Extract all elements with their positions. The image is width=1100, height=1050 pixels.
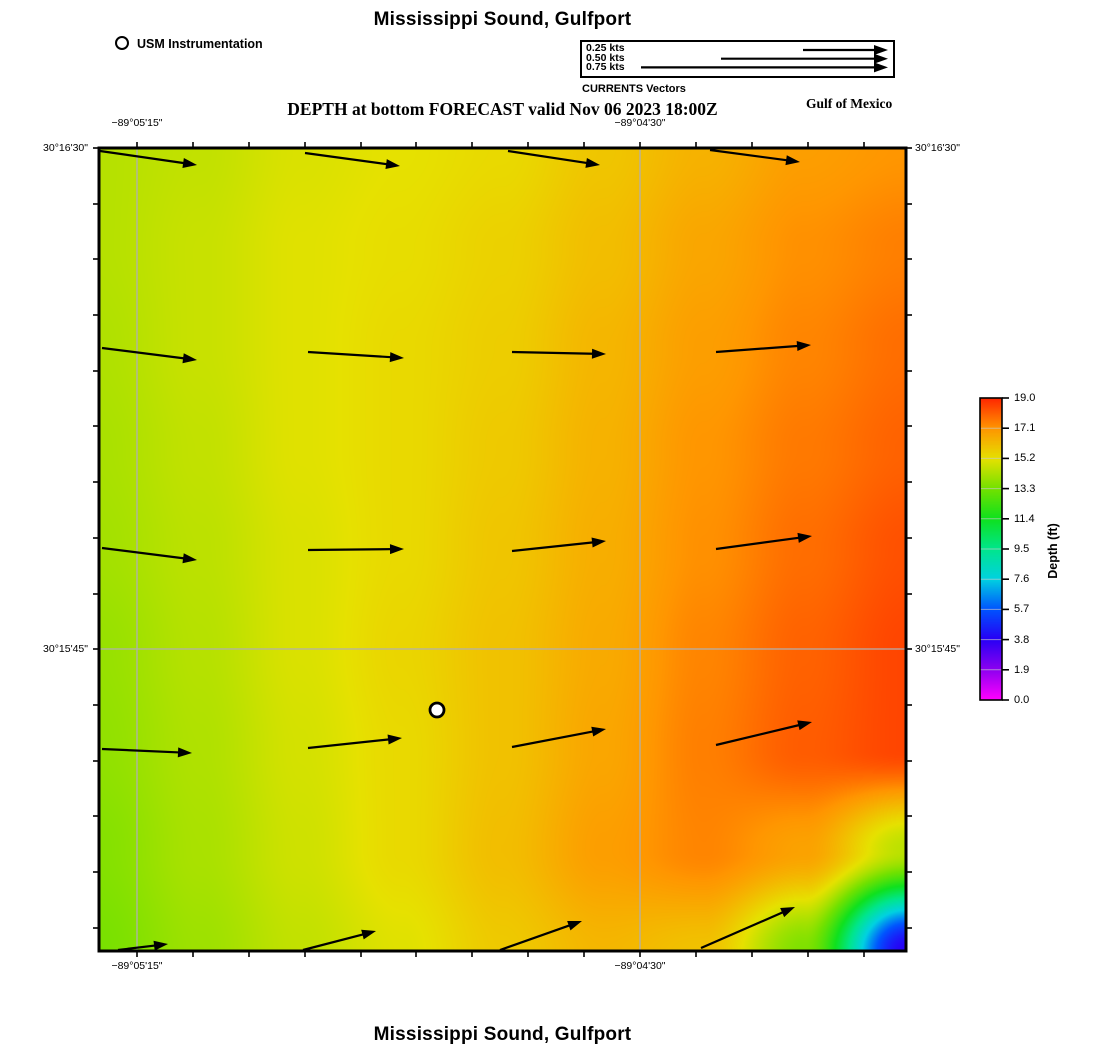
colorbar-tick-label: 13.3 <box>1014 483 1035 495</box>
bottom-title: Mississippi Sound, Gulfport <box>99 1024 906 1046</box>
colorbar-tick-label: 0.0 <box>1014 694 1029 706</box>
colorbar-tick-label: 11.4 <box>1014 513 1035 525</box>
x-axis-tick-label-top: −89°04'30" <box>580 117 700 129</box>
x-axis-tick-label-bottom: −89°05'15" <box>77 960 197 972</box>
x-axis-tick-label-bottom: −89°04'30" <box>580 960 700 972</box>
colorbar-frame-ticks <box>980 398 1009 700</box>
y-axis-tick-label-right: 30°16'30" <box>915 142 960 154</box>
map-overlay <box>0 0 1100 1050</box>
colorbar-tick-label: 9.5 <box>1014 543 1029 555</box>
forecast-subtitle: DEPTH at bottom FORECAST valid Nov 06 20… <box>99 99 906 120</box>
y-axis-tick-label-right: 30°15'45" <box>915 643 960 655</box>
vector-legend-box <box>580 40 895 78</box>
colorbar-tick-label: 15.2 <box>1014 452 1035 464</box>
station-marker <box>430 703 444 717</box>
vector-legend-entry-075: 0.75 kts <box>586 62 625 72</box>
colorbar-tick-label: 19.0 <box>1014 392 1035 404</box>
station-legend-label: USM Instrumentation <box>137 37 263 51</box>
current-vector-arrows <box>100 150 812 951</box>
axis-ticks <box>93 142 912 957</box>
x-axis-tick-label-top: −89°05'15" <box>77 117 197 129</box>
vector-legend-caption: CURRENTS Vectors <box>582 83 686 95</box>
top-title: Mississippi Sound, Gulfport <box>99 9 906 31</box>
colorbar-tick-label: 17.1 <box>1014 422 1035 434</box>
colorbar-tick-label: 3.8 <box>1014 634 1029 646</box>
map-border <box>99 148 906 951</box>
gridlines <box>99 148 906 951</box>
colorbar-tick-label: 7.6 <box>1014 573 1029 585</box>
colorbar-axis-title: Depth (ft) <box>1046 523 1060 579</box>
y-axis-tick-label-left: 30°15'45" <box>0 643 88 655</box>
figure-root: Mississippi Sound, Gulfport USM Instrume… <box>0 0 1100 1050</box>
station-legend-circle-icon <box>115 36 129 50</box>
colorbar-tick-label: 5.7 <box>1014 603 1029 615</box>
colorbar-tick-label: 1.9 <box>1014 664 1029 676</box>
y-axis-tick-label-left: 30°16'30" <box>0 142 88 154</box>
